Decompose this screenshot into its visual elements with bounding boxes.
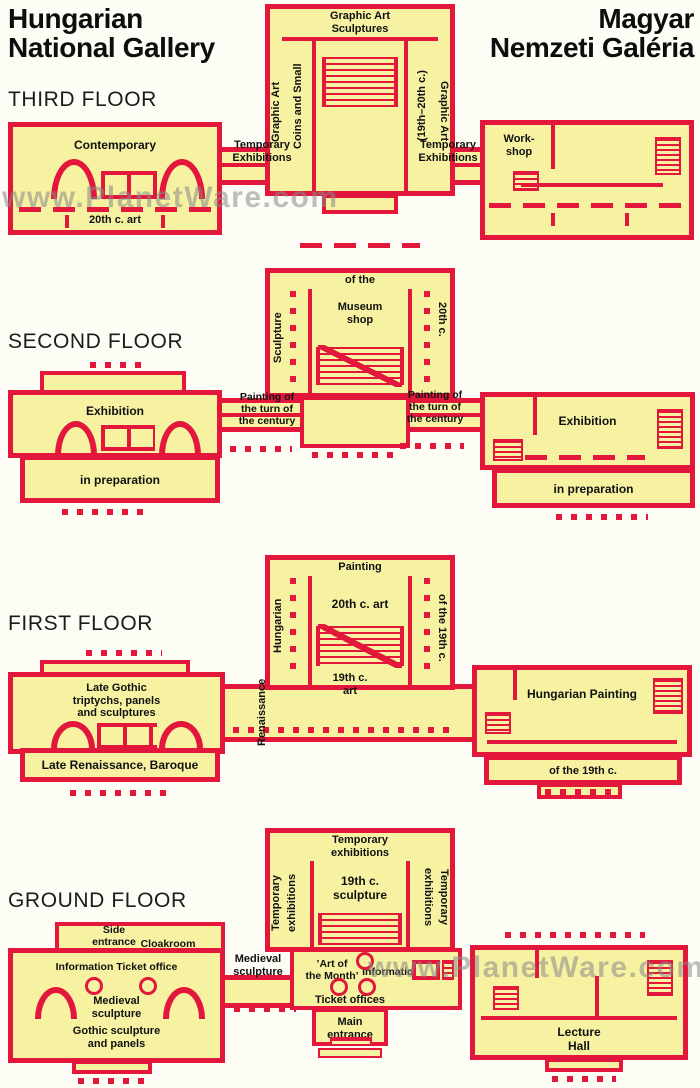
- title-line: Hungarian: [8, 4, 215, 33]
- decor-dots: [312, 452, 398, 458]
- floor-title-ground: GROUND FLOOR: [8, 889, 187, 913]
- gallery-title-hungarian: Magyar Nemzeti Galéria: [490, 4, 694, 63]
- floor-title-first: FIRST FLOOR: [8, 612, 153, 636]
- of-the-19th-c-label: of the 19th c.: [493, 765, 673, 778]
- 20th-c-art-label: 20th c. art: [53, 214, 177, 227]
- exhibitions-vertical-label: exhibitions: [420, 849, 436, 945]
- label-line: Work-: [491, 133, 547, 146]
- 20th-c-vertical-label: 20th c.: [434, 281, 450, 357]
- staircase-icon: [316, 626, 404, 666]
- arch-staircase-icon: [51, 721, 95, 749]
- floor-title-third: THIRD FLOOR: [8, 88, 157, 112]
- wall: [308, 289, 312, 393]
- of-the-label: of the: [270, 274, 450, 287]
- title-line: Nemzeti Galéria: [490, 33, 694, 62]
- label-line: Temporary: [270, 834, 450, 847]
- floor2-painting-turn-century-left-label: Painting of the turn of the century: [229, 391, 305, 427]
- label-line: Graphic Art: [270, 10, 450, 23]
- stairs-hatch-icon: [493, 439, 523, 461]
- wall: [310, 861, 314, 947]
- floor0-corridor: [225, 975, 295, 1008]
- title-line: National Gallery: [8, 33, 215, 62]
- stairs-hatch-icon: [653, 678, 683, 714]
- floor-title-second: SECOND FLOOR: [8, 330, 183, 354]
- wall: [513, 670, 517, 700]
- floor1-central-tower: Painting 20th c. art Hungarian of the 19…: [265, 555, 455, 690]
- label-line: Painting of: [229, 391, 305, 403]
- label-line: Exhibitions: [221, 152, 303, 165]
- decor-dots: [505, 932, 645, 938]
- gallery-title-english: Hungarian National Gallery: [8, 4, 215, 63]
- label-line: Medieval: [63, 995, 170, 1008]
- floor1-right-wing-base: [537, 783, 622, 799]
- floor3-temporary-exhibitions-left-label: Temporary Exhibitions: [221, 139, 303, 164]
- workshop-label: Work- shop: [491, 133, 547, 158]
- watermark: www.PlanetWare.com: [2, 181, 339, 215]
- wall: [406, 861, 410, 947]
- floor1-left-wing: Late Gothic triptychs, panels and sculpt…: [8, 672, 225, 754]
- wall: [312, 37, 316, 191]
- label-line: 19th c.: [310, 672, 390, 685]
- label-line: the century: [229, 415, 305, 427]
- of-the-19th-c-vertical-label: of the 19th c.: [434, 572, 450, 684]
- floor2-right-wing: Exhibition: [480, 392, 695, 470]
- exhibition-label: Exhibition: [525, 415, 650, 429]
- wall: [521, 183, 663, 187]
- arch-staircase-icon: [159, 421, 201, 455]
- circle-marker-icon: [139, 977, 157, 995]
- title-line: Magyar: [490, 4, 694, 33]
- floor2-left-wing: Exhibition: [8, 390, 222, 458]
- entrance-porch: [318, 1048, 382, 1058]
- label-line: Late Gothic: [27, 682, 206, 695]
- contemporary-label: Contemporary: [33, 139, 197, 153]
- label-line: Museum: [314, 301, 406, 314]
- stairs-hatch-icon: [513, 171, 539, 191]
- label-line: Temporary: [221, 139, 303, 152]
- label-line: and sculptures: [27, 707, 206, 720]
- wall: [308, 576, 312, 685]
- floor3-temporary-exhibitions-right-label: Temporary Exhibitions: [413, 139, 483, 164]
- label-line: ’Art of: [302, 958, 362, 970]
- lecture-hall-label: Lecture Hall: [525, 1026, 633, 1054]
- stairs-hatch-icon: [657, 409, 683, 449]
- label-line: Temporary: [413, 139, 483, 152]
- wall: [481, 1016, 677, 1020]
- art-of-the-month-label: ’Art of the Month’: [302, 958, 362, 982]
- temporary-vertical-label: Temporary: [268, 857, 284, 949]
- in-preparation-label: in preparation: [35, 474, 205, 488]
- label-line: sculpture: [314, 889, 406, 903]
- floor0-left-wing-base: [72, 1060, 152, 1074]
- wall-tick: [625, 213, 629, 226]
- arch-staircase-icon: [159, 721, 203, 749]
- watermark: www.PlanetWare.com: [368, 951, 700, 985]
- ticket-offices-label: Ticket offices: [314, 994, 386, 1007]
- decor-dots: [230, 446, 292, 452]
- 20th-c-art-label: 20th c. art: [314, 598, 406, 612]
- column-dots: [290, 291, 296, 387]
- decor-dots: [552, 1076, 616, 1082]
- floor1-left-wing-lower: Late Renaissance, Baroque: [20, 748, 220, 782]
- information-ticket-office-label: Information Ticket office: [29, 961, 204, 973]
- label-line: shop: [314, 314, 406, 327]
- label-line: Gothic sculpture: [43, 1025, 190, 1038]
- wall: [551, 125, 555, 169]
- wall-dashed: [525, 455, 645, 460]
- decor-dots: [234, 1006, 296, 1012]
- floor0-right-wing-base: [545, 1058, 623, 1072]
- decor-dots: [545, 789, 614, 795]
- decor-dots: [556, 514, 648, 520]
- gothic-sculpture-label: Gothic sculpture and panels: [43, 1025, 190, 1050]
- hungarian-painting-label: Hungarian Painting: [507, 688, 657, 702]
- label-line: Hall: [525, 1040, 633, 1054]
- renaissance-vertical-label: Renaissance: [254, 678, 270, 746]
- label-line: Main: [316, 1016, 384, 1029]
- 19th-c-sculpture-label: 19th c. sculpture: [314, 875, 406, 903]
- entrance-steps-icon: [330, 1037, 372, 1046]
- floor3-right-wing: Work- shop: [480, 120, 694, 240]
- label-line: the turn of: [229, 403, 305, 415]
- exhibitions-vertical-label: exhibitions: [284, 857, 300, 949]
- floor2-left-wing-lower: in preparation: [20, 455, 220, 503]
- floor1-right-wing-lower: of the 19th c.: [484, 755, 682, 785]
- label-line: shop: [491, 146, 547, 159]
- wall: [487, 740, 677, 744]
- wall-tick: [551, 213, 555, 226]
- late-renaissance-baroque-label: Late Renaissance, Baroque: [29, 759, 211, 773]
- label-line: sculpture: [63, 1008, 170, 1021]
- column-dots: [424, 291, 430, 387]
- label-line: Painting of: [402, 389, 468, 401]
- decor-dots: [400, 443, 464, 449]
- label-line: the turn of: [402, 401, 468, 413]
- painting-label: Painting: [270, 561, 450, 574]
- floor2-right-wing-lower: in preparation: [492, 468, 695, 508]
- stairs-hatch-icon: [485, 712, 511, 734]
- staircase-icon: [322, 57, 398, 107]
- floor2-central-tower: of the Museum shop Sculpture 20th c.: [265, 268, 455, 398]
- museum-shop-label: Museum shop: [314, 301, 406, 326]
- temporary-vertical-label: Temporary: [436, 849, 452, 945]
- label-line: Side: [84, 924, 144, 936]
- late-gothic-label: Late Gothic triptychs, panels and sculpt…: [27, 682, 206, 720]
- floor2-tower-base: [300, 396, 410, 448]
- label-line: sculpture: [226, 966, 290, 979]
- decor-dots: [70, 790, 174, 796]
- floor3-central-tower: Graphic Art Sculptures Graphic Art Coins…: [265, 4, 455, 196]
- room-dividers: [97, 723, 157, 749]
- floor-plan-canvas: Hungarian National Gallery Magyar Nemzet…: [0, 0, 700, 1088]
- side-entrance-label: Side entrance: [84, 924, 144, 948]
- sculpture-vertical-label: Sculpture: [270, 287, 286, 389]
- exhibition-label: Exhibition: [33, 405, 197, 419]
- decor-dots: [86, 650, 162, 656]
- hungarian-vertical-label: Hungarian: [270, 576, 286, 676]
- floor0-central-tower: Temporary exhibitions 19th c. sculpture …: [265, 828, 455, 952]
- corridor-medieval-sculpture-label: Medieval sculpture: [226, 953, 290, 978]
- decor-dots: [90, 362, 146, 368]
- label-line: Lecture: [525, 1026, 633, 1040]
- label-line: triptychs, panels: [27, 695, 206, 708]
- label-line: entrance: [84, 936, 144, 948]
- in-preparation-label: in preparation: [507, 483, 680, 497]
- staircase-icon: [318, 913, 402, 945]
- decor-dots: [62, 509, 150, 515]
- label-line: 19th c.: [314, 875, 406, 889]
- column-dots: [424, 578, 430, 679]
- stairs-hatch-icon: [655, 137, 681, 175]
- label-line: and panels: [43, 1038, 190, 1051]
- wall-dashed: [489, 203, 685, 208]
- label-line: the century: [402, 413, 468, 425]
- wall: [408, 289, 412, 393]
- wall: [533, 397, 537, 435]
- decor-dashes: [300, 243, 420, 248]
- circle-marker-icon: [85, 977, 103, 995]
- medieval-sculpture-label: Medieval sculpture: [63, 995, 170, 1020]
- cloakroom-label: Cloakroom: [138, 938, 198, 950]
- floor2-painting-turn-century-right-label: Painting of the turn of the century: [402, 389, 468, 425]
- label-line: Exhibitions: [413, 152, 483, 165]
- floor3-left-wing: Contemporary 20th c. art: [8, 122, 222, 235]
- stairs-hatch-icon: [493, 986, 519, 1010]
- floor0-left-wing: Information Ticket office Medieval sculp…: [8, 948, 225, 1063]
- label-line: Medieval: [226, 953, 290, 966]
- arch-staircase-icon: [55, 421, 97, 455]
- wall: [404, 37, 408, 191]
- floor1-right-wing: Hungarian Painting: [472, 665, 692, 757]
- 19th-c-art-corridor-label: 19th c. art: [310, 672, 390, 697]
- wall: [408, 576, 412, 685]
- column-dots: [290, 578, 296, 679]
- staircase-icon: [316, 347, 404, 385]
- room-dividers: [101, 425, 155, 451]
- decor-dots: [78, 1078, 144, 1084]
- label-line: art: [310, 685, 390, 698]
